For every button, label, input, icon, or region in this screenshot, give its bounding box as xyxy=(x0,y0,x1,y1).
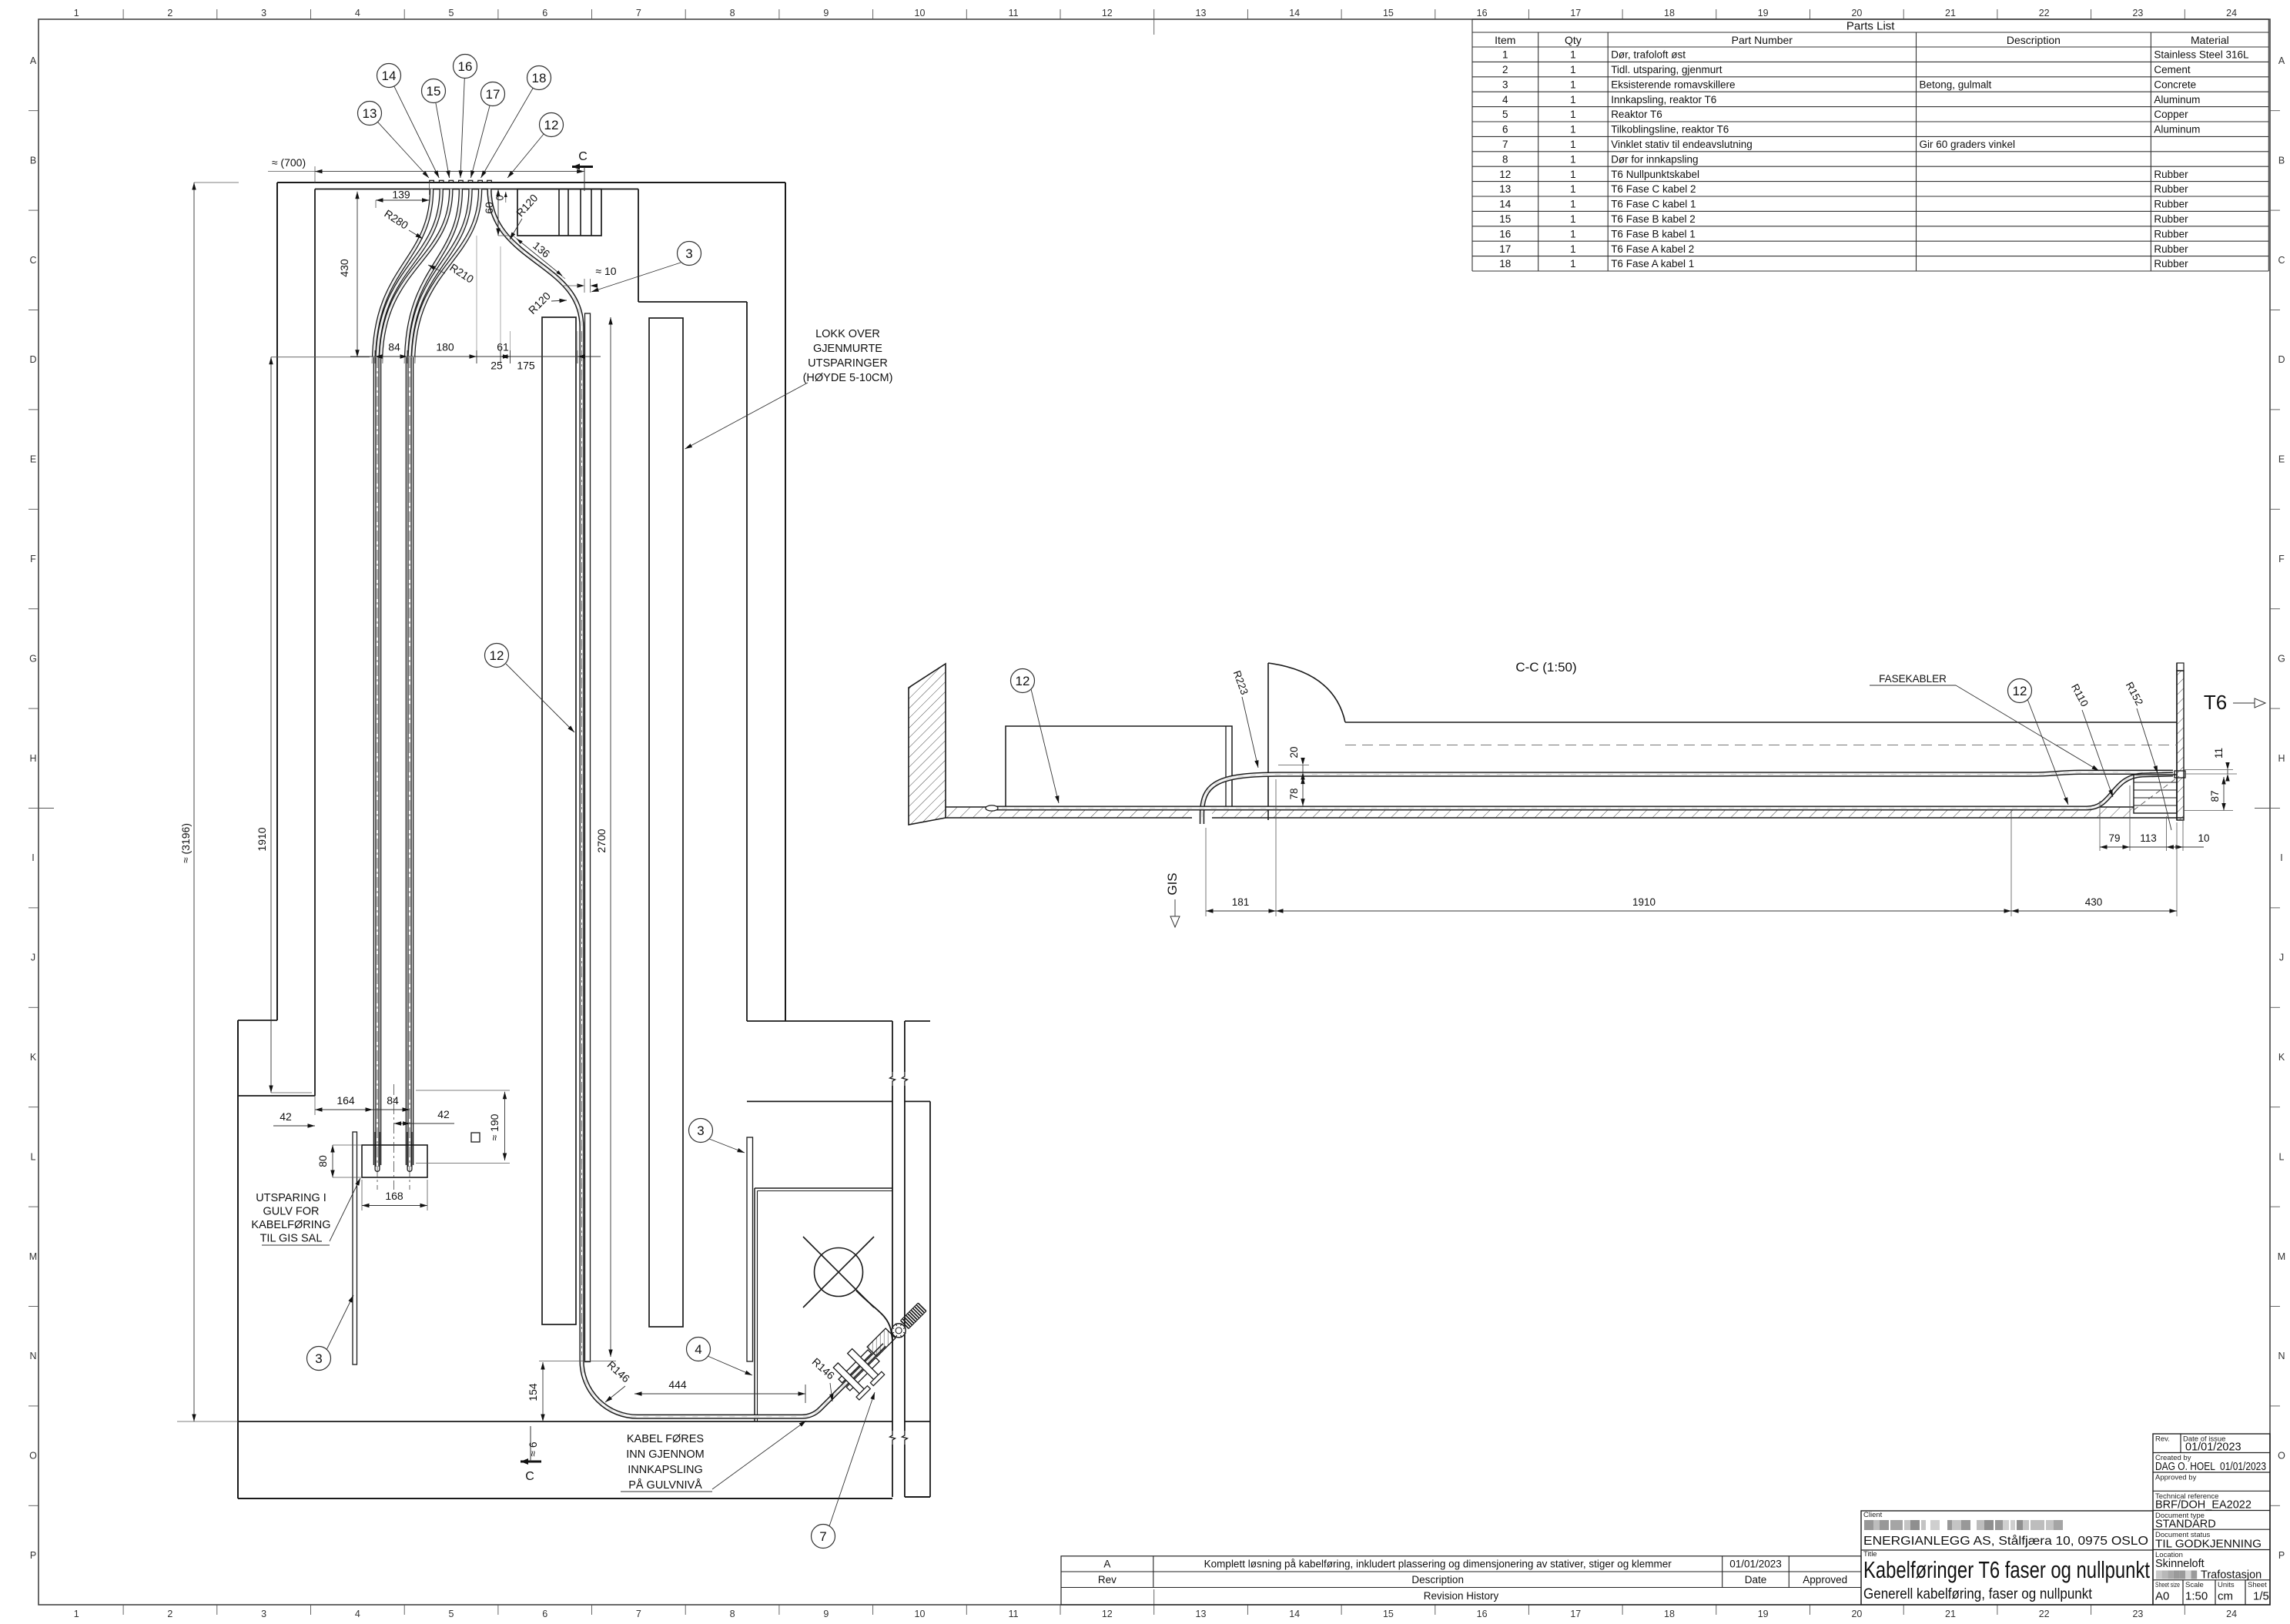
svg-text:1: 1 xyxy=(1502,49,1508,61)
svg-text:FASEKABLER: FASEKABLER xyxy=(1879,673,1947,685)
svg-text:13: 13 xyxy=(1196,1609,1207,1619)
svg-text:12: 12 xyxy=(1102,8,1113,18)
svg-text:61: 61 xyxy=(497,341,509,353)
svg-text:P: P xyxy=(30,1550,36,1561)
svg-text:24: 24 xyxy=(2226,1609,2237,1619)
svg-text:N: N xyxy=(29,1351,36,1361)
svg-text:Part Number: Part Number xyxy=(1732,34,1793,46)
svg-text:Vinklet stativ til endeavslutn: Vinklet stativ til endeavslutning xyxy=(1611,139,1753,150)
svg-text:Gir 60 graders vinkel: Gir 60 graders vinkel xyxy=(1920,139,2016,150)
svg-text:22: 22 xyxy=(2039,1609,2050,1619)
svg-text:T6 Nullpunktskabel: T6 Nullpunktskabel xyxy=(1611,169,1699,180)
svg-text:A0: A0 xyxy=(2155,1590,2169,1603)
svg-text:01/01/2023: 01/01/2023 xyxy=(2185,1442,2241,1454)
svg-text:Sheet: Sheet xyxy=(2248,1581,2267,1589)
svg-text:17: 17 xyxy=(486,87,501,102)
svg-text:K: K xyxy=(30,1052,37,1063)
svg-text:14: 14 xyxy=(1499,199,1512,210)
svg-text:8: 8 xyxy=(730,1609,735,1619)
svg-text:6: 6 xyxy=(542,1609,547,1619)
svg-text:11: 11 xyxy=(2213,748,2225,758)
svg-text:18: 18 xyxy=(532,71,547,85)
svg-text:1: 1 xyxy=(1570,94,1576,105)
svg-text:Cement: Cement xyxy=(2154,64,2191,75)
svg-text:10: 10 xyxy=(915,8,926,18)
svg-text:1: 1 xyxy=(1570,228,1576,239)
svg-text:J: J xyxy=(31,953,35,963)
svg-text:M: M xyxy=(29,1251,37,1262)
svg-text:1: 1 xyxy=(1570,258,1576,270)
svg-text:18: 18 xyxy=(1499,258,1511,270)
svg-text:7: 7 xyxy=(636,8,641,18)
svg-text:Revision History: Revision History xyxy=(1424,1590,1499,1602)
svg-text:430: 430 xyxy=(2085,896,2103,908)
svg-text:F: F xyxy=(2278,554,2285,564)
svg-text:1: 1 xyxy=(1570,49,1576,61)
svg-text:(HØYDE 5-10CM): (HØYDE 5-10CM) xyxy=(803,372,893,384)
svg-text:15: 15 xyxy=(1383,1609,1394,1619)
svg-text:1: 1 xyxy=(74,1609,79,1619)
svg-text:6: 6 xyxy=(1502,124,1508,136)
svg-text:154: 154 xyxy=(527,1383,539,1401)
svg-text:M: M xyxy=(2278,1251,2285,1262)
svg-text:T6 Fase B kabel 2: T6 Fase B kabel 2 xyxy=(1611,213,1696,225)
svg-text:01/01/2023: 01/01/2023 xyxy=(1729,1559,1782,1570)
svg-text:Aluminum: Aluminum xyxy=(2154,94,2200,105)
svg-text:78: 78 xyxy=(1288,788,1300,799)
svg-text:DAG O. HOEL 01/01/2023: DAG O. HOEL 01/01/2023 xyxy=(2155,1461,2266,1473)
svg-text:C: C xyxy=(2278,255,2285,266)
svg-text:3: 3 xyxy=(1502,79,1508,90)
svg-text:4: 4 xyxy=(1502,94,1508,105)
svg-text:H: H xyxy=(29,753,36,764)
svg-text:15: 15 xyxy=(1499,213,1511,225)
svg-text:Rubber: Rubber xyxy=(2154,183,2188,195)
svg-text:21: 21 xyxy=(1945,8,1956,18)
svg-text:13: 13 xyxy=(1499,183,1511,195)
svg-text:T6: T6 xyxy=(2204,691,2227,714)
svg-text:79: 79 xyxy=(2108,832,2120,844)
svg-text:≈ (700): ≈ (700) xyxy=(272,156,306,169)
svg-text:Description: Description xyxy=(1411,1574,1464,1585)
svg-text:1: 1 xyxy=(1570,183,1576,195)
svg-text:O: O xyxy=(29,1451,37,1462)
svg-text:24: 24 xyxy=(2226,8,2237,18)
svg-text:9: 9 xyxy=(823,8,829,18)
svg-text:Rubber: Rubber xyxy=(2154,258,2188,270)
svg-text:C: C xyxy=(525,1470,534,1483)
svg-text:139: 139 xyxy=(392,189,410,201)
svg-text:3: 3 xyxy=(685,246,692,261)
svg-text:14: 14 xyxy=(382,69,397,83)
svg-text:17: 17 xyxy=(1499,243,1511,255)
svg-text:Tidl. utsparing, gjenmurt: Tidl. utsparing, gjenmurt xyxy=(1611,64,1723,75)
svg-text:STANDARD: STANDARD xyxy=(2155,1519,2216,1531)
svg-text:A: A xyxy=(30,55,37,66)
svg-text:Approved: Approved xyxy=(1803,1574,1847,1585)
svg-text:2: 2 xyxy=(1502,64,1508,75)
svg-text:Tilkoblingsline, reaktor T6: Tilkoblingsline, reaktor T6 xyxy=(1611,124,1729,136)
svg-text:16: 16 xyxy=(1499,228,1511,239)
svg-text:Rev.: Rev. xyxy=(2155,1435,2170,1444)
svg-text:cm: cm xyxy=(2218,1590,2233,1603)
svg-text:Rubber: Rubber xyxy=(2154,228,2188,239)
svg-text:20: 20 xyxy=(1851,1609,1862,1619)
svg-text:181: 181 xyxy=(1232,896,1250,908)
svg-text:12: 12 xyxy=(1499,169,1511,180)
svg-text:11: 11 xyxy=(1009,1609,1019,1619)
svg-text:12: 12 xyxy=(1016,674,1030,688)
svg-text:1: 1 xyxy=(1570,243,1576,255)
svg-text:1: 1 xyxy=(1570,79,1576,90)
svg-text:5: 5 xyxy=(449,8,454,18)
svg-text:16: 16 xyxy=(1477,1609,1488,1619)
svg-text:E: E xyxy=(30,454,36,465)
svg-text:Approved by: Approved by xyxy=(2155,1474,2197,1482)
svg-text:GULV FOR: GULV FOR xyxy=(263,1206,319,1218)
svg-text:4: 4 xyxy=(355,1609,360,1619)
svg-text:≈ 6: ≈ 6 xyxy=(527,1442,539,1457)
svg-text:15: 15 xyxy=(1383,8,1394,18)
svg-text:19: 19 xyxy=(1758,8,1769,18)
svg-text:1: 1 xyxy=(1570,64,1576,75)
svg-text:1: 1 xyxy=(1570,153,1576,165)
svg-text:1: 1 xyxy=(1570,109,1576,120)
svg-text:175: 175 xyxy=(517,360,535,372)
svg-text:C: C xyxy=(578,150,588,163)
svg-text:9: 9 xyxy=(823,1609,829,1619)
svg-text:12: 12 xyxy=(2013,684,2027,698)
svg-text:20: 20 xyxy=(1851,8,1862,18)
svg-text:7: 7 xyxy=(636,1609,641,1619)
svg-text:TIL GODKJENNING: TIL GODKJENNING xyxy=(2155,1539,2262,1551)
svg-text:80: 80 xyxy=(316,1155,329,1167)
svg-text:A: A xyxy=(1103,1559,1110,1570)
svg-text:Aluminum: Aluminum xyxy=(2154,124,2200,136)
svg-text:60: 60 xyxy=(483,202,495,214)
svg-text:444: 444 xyxy=(668,1378,687,1391)
svg-text:Parts List: Parts List xyxy=(1846,20,1895,33)
svg-text:P: P xyxy=(2278,1550,2285,1561)
svg-text:12: 12 xyxy=(544,118,559,132)
svg-text:2: 2 xyxy=(167,1609,172,1619)
svg-text:17: 17 xyxy=(1570,8,1581,18)
svg-text:F: F xyxy=(30,554,36,564)
svg-text:H: H xyxy=(2278,753,2285,764)
svg-text:T6 Fase C kabel 1: T6 Fase C kabel 1 xyxy=(1611,199,1696,210)
svg-text:15: 15 xyxy=(427,84,441,99)
svg-text:1: 1 xyxy=(1570,124,1576,136)
svg-text:1/5: 1/5 xyxy=(2253,1590,2269,1603)
svg-text:Qty: Qty xyxy=(1565,34,1582,46)
svg-text:L: L xyxy=(2279,1151,2285,1162)
svg-text:180: 180 xyxy=(436,341,454,353)
svg-text:25: 25 xyxy=(490,360,503,372)
svg-text:84: 84 xyxy=(387,1094,399,1107)
svg-text:Betong, gulmalt: Betong, gulmalt xyxy=(1920,79,1992,90)
svg-text:1: 1 xyxy=(1570,139,1576,150)
svg-text:GIS: GIS xyxy=(1165,872,1180,895)
svg-text:INNKAPSLING: INNKAPSLING xyxy=(628,1464,703,1476)
svg-text:1910: 1910 xyxy=(256,827,268,851)
svg-text:BRF/DOH_EA2022: BRF/DOH_EA2022 xyxy=(2155,1499,2251,1512)
svg-text:Rubber: Rubber xyxy=(2154,169,2188,180)
svg-text:1:50: 1:50 xyxy=(2185,1590,2208,1603)
svg-text:UTSPARINGER: UTSPARINGER xyxy=(808,357,888,370)
svg-text:18: 18 xyxy=(1664,1609,1675,1619)
svg-text:87: 87 xyxy=(2209,790,2221,802)
svg-text:12: 12 xyxy=(1102,1609,1113,1619)
svg-text:2700: 2700 xyxy=(595,829,608,852)
svg-text:3: 3 xyxy=(697,1123,704,1138)
svg-text:Eksisterende romavskillere: Eksisterende romavskillere xyxy=(1611,79,1735,90)
svg-text:G: G xyxy=(29,653,37,664)
svg-text:10: 10 xyxy=(915,1609,926,1619)
svg-text:4: 4 xyxy=(695,1342,701,1357)
svg-text:C: C xyxy=(29,255,36,266)
svg-text:O: O xyxy=(2278,1451,2285,1462)
svg-text:1: 1 xyxy=(74,8,79,18)
svg-text:164: 164 xyxy=(336,1094,355,1107)
svg-text:TIL GIS SAL: TIL GIS SAL xyxy=(260,1233,323,1245)
svg-text:GJENMURTE: GJENMURTE xyxy=(813,343,882,355)
svg-text:19: 19 xyxy=(1758,1609,1769,1619)
svg-text:5: 5 xyxy=(1502,109,1508,120)
svg-text:Description: Description xyxy=(2007,34,2061,46)
svg-text:Rubber: Rubber xyxy=(2154,213,2188,225)
svg-text:B: B xyxy=(30,155,36,166)
svg-text:Skinneloft: Skinneloft xyxy=(2155,1558,2205,1570)
svg-text:J: J xyxy=(2279,953,2284,963)
svg-text:42: 42 xyxy=(280,1110,292,1123)
svg-text:KABEL FØRES: KABEL FØRES xyxy=(627,1433,704,1445)
svg-text:Units: Units xyxy=(2218,1581,2235,1589)
svg-text:5: 5 xyxy=(449,1609,454,1619)
svg-text:C-C (1:50): C-C (1:50) xyxy=(1515,660,1576,675)
svg-text:4: 4 xyxy=(355,8,360,18)
svg-text:Generell kabelføring, faser og: Generell kabelføring, faser og nullpunkt xyxy=(1863,1585,2093,1602)
svg-text:Dør for innkapsling: Dør for innkapsling xyxy=(1611,153,1698,165)
svg-text:Scale: Scale xyxy=(2185,1581,2204,1589)
svg-text:INN GJENNOM: INN GJENNOM xyxy=(626,1448,705,1461)
svg-text:Innkapsling, reaktor T6: Innkapsling, reaktor T6 xyxy=(1611,94,1716,105)
svg-text:3: 3 xyxy=(261,8,266,18)
svg-text:Client: Client xyxy=(1863,1511,1883,1519)
svg-text:42: 42 xyxy=(437,1108,450,1120)
svg-text:Material: Material xyxy=(2191,34,2229,46)
svg-text:168: 168 xyxy=(385,1190,403,1202)
svg-text:A: A xyxy=(2278,55,2285,66)
svg-text:T6 Fase C kabel 2: T6 Fase C kabel 2 xyxy=(1611,183,1696,195)
svg-text:L: L xyxy=(31,1151,36,1162)
svg-text:1: 1 xyxy=(1570,213,1576,225)
svg-text:KABELFØRING: KABELFØRING xyxy=(251,1219,330,1231)
svg-text:Reaktor T6: Reaktor T6 xyxy=(1611,109,1662,120)
svg-text:12: 12 xyxy=(490,648,504,663)
svg-text:Concrete: Concrete xyxy=(2154,79,2196,90)
svg-text:1910: 1910 xyxy=(1632,896,1656,908)
svg-text:3: 3 xyxy=(261,1609,266,1619)
svg-text:3: 3 xyxy=(315,1351,322,1366)
svg-text:14: 14 xyxy=(1289,1609,1300,1619)
svg-text:PÅ GULVNIVÅ: PÅ GULVNIVÅ xyxy=(628,1478,702,1492)
svg-text:D: D xyxy=(2278,354,2285,365)
svg-text:Date: Date xyxy=(1745,1574,1767,1585)
svg-text:UTSPARING I: UTSPARING I xyxy=(256,1192,326,1204)
svg-text:21: 21 xyxy=(1945,1609,1956,1619)
svg-text:I: I xyxy=(32,852,34,863)
svg-text:17: 17 xyxy=(1570,1609,1581,1619)
svg-text:Trafostasjon: Trafostasjon xyxy=(2201,1569,2262,1582)
svg-text:Stainless Steel 316L: Stainless Steel 316L xyxy=(2154,49,2249,61)
svg-text:ENERGIANLEGG AS, Stålfjæra 10,: ENERGIANLEGG AS, Stålfjæra 10, 0975 OSLO xyxy=(1863,1534,2148,1548)
svg-text:13: 13 xyxy=(1196,8,1207,18)
svg-text:≈ 10: ≈ 10 xyxy=(595,265,616,277)
svg-text:≈ (3196): ≈ (3196) xyxy=(179,823,192,863)
svg-text:6: 6 xyxy=(542,8,547,18)
svg-text:23: 23 xyxy=(2132,1609,2143,1619)
svg-text:8: 8 xyxy=(730,8,735,18)
svg-text:14: 14 xyxy=(1289,8,1300,18)
svg-text:1: 1 xyxy=(1570,169,1576,180)
svg-text:Rubber: Rubber xyxy=(2154,199,2188,210)
svg-text:T6 Fase A kabel 1: T6 Fase A kabel 1 xyxy=(1611,258,1694,270)
svg-text:LOKK OVER: LOKK OVER xyxy=(815,328,880,340)
svg-text:T6 Fase A kabel 2: T6 Fase A kabel 2 xyxy=(1611,243,1694,255)
svg-text:Kabelføringer T6 faser og null: Kabelføringer T6 faser og nullpunkt xyxy=(1863,1556,2150,1583)
svg-text:Rubber: Rubber xyxy=(2154,243,2188,255)
svg-text:1: 1 xyxy=(1570,199,1576,210)
svg-text:I: I xyxy=(2280,852,2282,863)
svg-text:K: K xyxy=(2278,1052,2285,1063)
svg-text:13: 13 xyxy=(363,106,377,121)
svg-text:22: 22 xyxy=(2039,8,2050,18)
svg-text:84: 84 xyxy=(388,341,400,353)
svg-text:23: 23 xyxy=(2132,8,2143,18)
svg-text:Sheet size: Sheet size xyxy=(2155,1581,2180,1589)
svg-text:T6 Fase B kabel 1: T6 Fase B kabel 1 xyxy=(1611,228,1696,239)
svg-text:≈ 190: ≈ 190 xyxy=(488,1113,501,1140)
svg-text:16: 16 xyxy=(458,59,473,74)
svg-text:7: 7 xyxy=(819,1529,826,1544)
svg-text:D: D xyxy=(29,354,36,365)
svg-text:11: 11 xyxy=(1009,8,1019,18)
svg-text:18: 18 xyxy=(1664,8,1675,18)
svg-text:8: 8 xyxy=(1502,153,1508,165)
svg-text:2: 2 xyxy=(167,8,172,18)
svg-text:113: 113 xyxy=(2140,832,2157,844)
svg-text:E: E xyxy=(2278,454,2285,465)
svg-text:B: B xyxy=(2278,155,2285,166)
svg-text:Rev: Rev xyxy=(1098,1574,1117,1585)
svg-text:20: 20 xyxy=(1288,746,1300,758)
svg-text:Komplett løsning på kabelførin: Komplett løsning på kabelføring, inklude… xyxy=(1204,1559,1672,1570)
svg-text:Dør, trafoloft øst: Dør, trafoloft øst xyxy=(1611,49,1686,61)
svg-text:430: 430 xyxy=(338,259,350,277)
svg-text:7: 7 xyxy=(1502,139,1508,150)
svg-text:N: N xyxy=(2278,1351,2285,1361)
svg-text:G: G xyxy=(2278,653,2285,664)
svg-text:10: 10 xyxy=(2198,832,2209,844)
svg-text:Item: Item xyxy=(1495,34,1515,46)
svg-text:Copper: Copper xyxy=(2154,109,2188,120)
svg-text:16: 16 xyxy=(1477,8,1488,18)
